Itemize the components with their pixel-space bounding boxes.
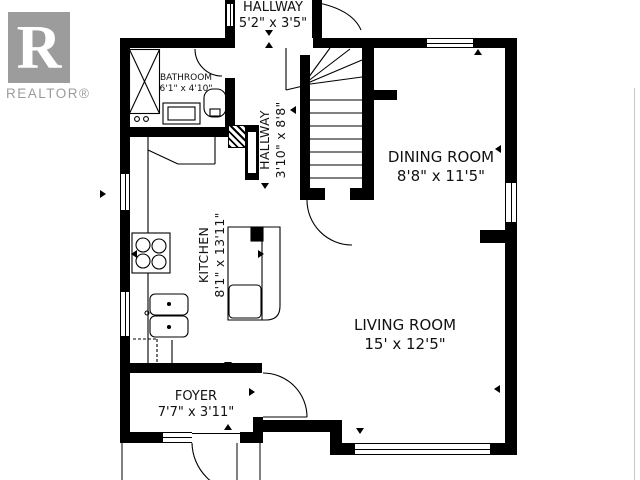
window-kitchen-upper [120,174,130,210]
room-name: HALLWAY [257,85,273,195]
stair-bottom-wall-right [350,188,374,200]
foyer-bottom-wall-right [240,432,263,443]
dimension-arrow [258,250,264,258]
foyer-living-door-arc [263,373,307,417]
dimension-arrow [224,362,232,368]
dimension-arrow [224,424,232,430]
window-kitchen-lower [120,292,130,336]
room-dims: 3'10" x 8'8" [273,85,289,195]
room-name: HALLWAY [210,0,336,16]
bathroom-bottom-wall [120,127,235,137]
dimension-arrow [100,190,106,198]
room-label-hallway-top: HALLWAY 5'2" x 3'5" [210,0,336,33]
room-label-kitchen: KITCHEN 8'1" x 13'11" [196,194,230,316]
bathroom-sink [163,103,200,124]
porch-outline [122,443,260,480]
bathroom-door-arc [195,49,222,76]
dimension-arrow [363,143,369,151]
dining-left-wall-stub [362,90,397,100]
kitchen-sink-lower [150,316,188,337]
room-label-foyer: FOYER 7'7" x 3'11" [135,389,257,422]
exterior-wall-top-left [120,38,233,48]
dining-living-divider [480,230,517,243]
room-label-dining: DINING ROOM 8'8" x 11'5" [360,148,522,186]
stair-door-arc [307,200,352,245]
window-living-bottom [355,443,490,455]
dimension-arrow [494,385,500,393]
bathroom-door-opening [225,48,235,78]
hall-kitchen-opening [248,132,256,173]
room-label-hallway-main: HALLWAY 3'10" x 8'8" [257,85,289,195]
room-dims: 8'1" x 13'11" [212,194,228,316]
kitchen-sink-upper [150,294,188,315]
room-name: FOYER [135,389,257,405]
room-label-bathroom: BATHROOM 6'1" x 4'10" [150,73,222,96]
room-name: BATHROOM [150,73,222,84]
room-dims: 6'1" x 4'10" [150,84,222,95]
dimension-arrow [131,250,137,258]
exterior-wall-right [505,38,517,455]
scan-edge-line [634,88,635,480]
dimension-arrow [261,183,269,189]
stair-left-wall [300,55,310,200]
room-dims: 7'7" x 3'11" [135,405,257,421]
floor-plan: HALLWAY 5'2" x 3'5" BATHROOM 6'1" x 4'10… [0,0,640,480]
stove [132,233,170,273]
exterior-wall-top-right [313,38,517,48]
room-name: KITCHEN [196,194,212,316]
stair-bottom-wall-left [300,188,325,200]
room-dims: 5'2" x 3'5" [210,16,336,32]
dimension-arrow [265,42,273,48]
dimension-arrow [356,428,364,434]
wall-right-of-foyer [255,420,342,432]
dimension-arrow [249,388,255,396]
detail-lines [0,0,640,480]
kitchen-island [228,227,280,320]
front-door-arc [192,443,242,480]
room-dims: 15' x 12'5" [325,335,485,354]
realtor-logo-label: REALTOR® [6,86,90,101]
window-dining-right [505,183,517,222]
wall-step-bottom [330,420,342,455]
room-label-living: LIVING ROOM 15' x 12'5" [325,316,485,354]
room-dims: 8'8" x 11'5" [360,167,522,186]
logo-r-letter: R [17,17,62,79]
window-foyer [163,432,192,443]
realtor-logo: R [8,12,70,83]
dimension-arrow [474,49,482,55]
room-name: LIVING ROOM [325,316,485,335]
foyer-bottom-wall-left [120,432,163,443]
staircase [286,48,362,245]
dimension-arrow [265,30,273,36]
dimension-arrow [495,145,501,153]
foyer-top-wall [120,363,262,373]
window-dining-top [427,38,473,48]
dishwasher [229,285,261,318]
dimension-arrow [120,394,126,402]
dimension-arrow [290,106,296,114]
exterior-wall-left [120,38,130,443]
